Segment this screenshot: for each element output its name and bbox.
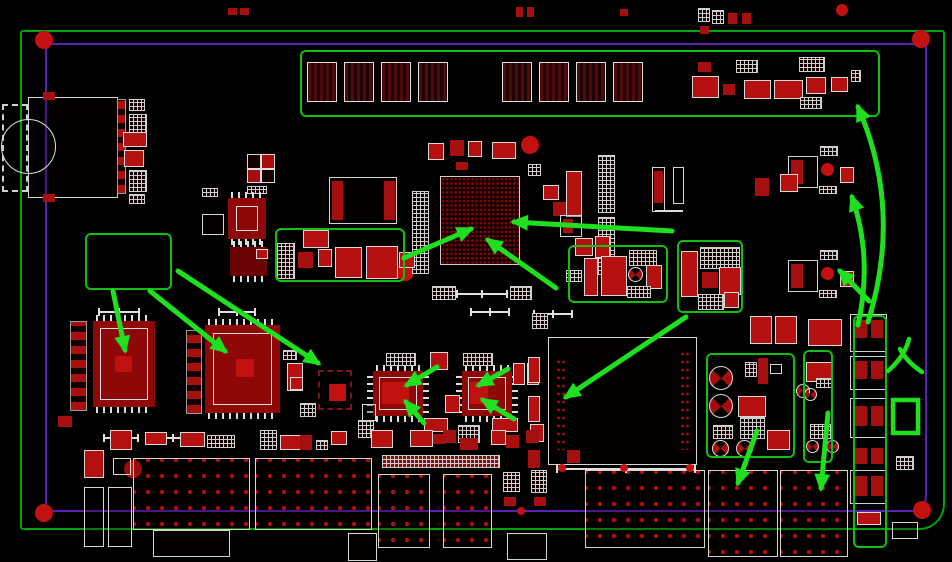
annotation-box [803, 350, 833, 463]
annotation-box [853, 315, 887, 548]
annotation-box [85, 233, 172, 290]
pcb-layout-screenshot [0, 0, 952, 562]
annotation-box [300, 50, 880, 117]
annotation-boxes-layer [0, 0, 952, 562]
annotation-box [706, 353, 795, 458]
annotation-box [275, 228, 405, 282]
annotation-box [677, 240, 743, 313]
annotation-box [568, 245, 668, 303]
